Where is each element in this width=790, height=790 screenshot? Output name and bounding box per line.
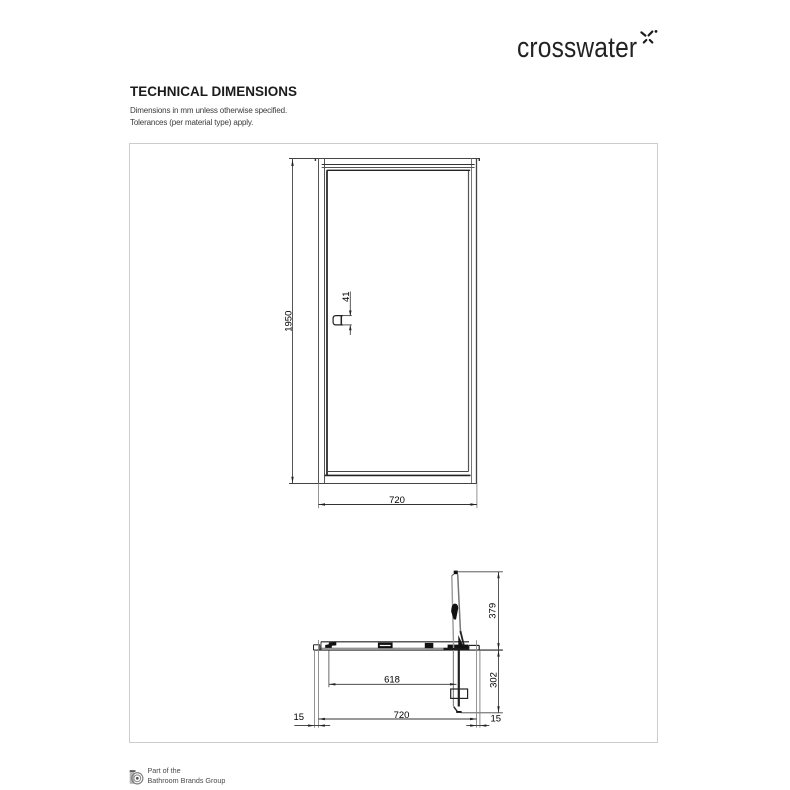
svg-text:379: 379: [487, 603, 498, 619]
svg-text:15: 15: [491, 713, 502, 724]
svg-text:720: 720: [394, 710, 410, 721]
svg-text:1950: 1950: [283, 311, 294, 332]
svg-text:720: 720: [389, 495, 405, 506]
svg-text:15: 15: [294, 712, 305, 723]
svg-text:618: 618: [384, 675, 400, 686]
svg-text:302: 302: [489, 672, 500, 688]
svg-text:41: 41: [341, 291, 352, 302]
